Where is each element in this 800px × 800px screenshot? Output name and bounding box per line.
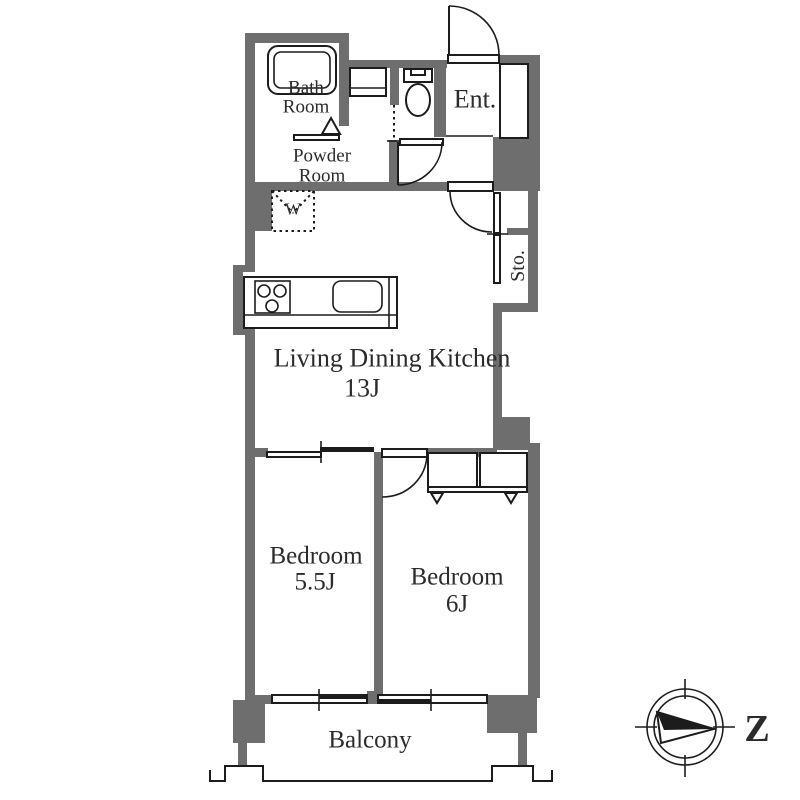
bedroom-1: Bedroom 5.5J bbox=[269, 543, 363, 596]
toilet-icon bbox=[406, 84, 430, 116]
wall-segment bbox=[233, 265, 255, 272]
wall-segment bbox=[493, 417, 530, 450]
wall-segment bbox=[374, 452, 383, 695]
toilet-tank-lid bbox=[411, 69, 425, 75]
balcony-outline bbox=[210, 766, 552, 781]
wall-segment bbox=[434, 60, 446, 137]
closet-door-mark bbox=[431, 493, 443, 503]
wall-segment bbox=[390, 60, 399, 105]
bedroom1-label-2: 5.5J bbox=[295, 569, 336, 596]
ldk-label-2: 13J bbox=[344, 374, 380, 403]
toilet-door-sill bbox=[400, 139, 443, 145]
compass: Z bbox=[635, 679, 770, 777]
toilet-door-arc bbox=[398, 142, 442, 185]
storage-door-panel bbox=[494, 193, 500, 233]
compass-needle-fill bbox=[657, 712, 714, 730]
ldk-door-sill bbox=[448, 182, 493, 191]
closet-box bbox=[480, 453, 527, 487]
bedroom2-door-sill bbox=[382, 449, 427, 457]
powder-room-label-2: Room bbox=[299, 166, 346, 187]
wall-segment bbox=[518, 733, 527, 767]
wall-segment bbox=[396, 182, 448, 191]
bedroom2-label-1: Bedroom bbox=[410, 564, 504, 591]
closet-rail bbox=[428, 487, 527, 492]
sliding-door-panel bbox=[267, 452, 321, 457]
wall-segment bbox=[233, 700, 265, 743]
entrance-door-arc bbox=[449, 6, 499, 55]
vanity-icon bbox=[350, 68, 386, 96]
shoe-cabinet bbox=[500, 64, 528, 138]
wall-segment bbox=[487, 695, 537, 733]
floor-plan-page: Bath Room Powder Room Ent. Sto bbox=[0, 0, 800, 800]
floor-plan: Bath Room Powder Room Ent. Sto bbox=[0, 0, 800, 800]
kitchen-counter bbox=[244, 277, 397, 328]
closet-box bbox=[428, 453, 477, 487]
sliding-door-panel bbox=[320, 447, 374, 452]
bath-room: Bath Room bbox=[268, 46, 340, 140]
ldk-door-arc bbox=[450, 191, 492, 232]
balcony-label: Balcony bbox=[328, 727, 412, 754]
sliding-door bbox=[267, 441, 374, 463]
washer-label: W bbox=[285, 200, 302, 219]
walls bbox=[233, 33, 540, 767]
ldk: Living Dining Kitchen 13J bbox=[274, 344, 511, 403]
wall-segment bbox=[238, 743, 247, 767]
wall-segment bbox=[245, 335, 255, 706]
wall-segment bbox=[233, 328, 255, 335]
storage-label: Sto. bbox=[507, 250, 529, 282]
wall-segment bbox=[493, 137, 540, 191]
storage: Sto. bbox=[487, 193, 529, 283]
hall-ldk-door bbox=[448, 182, 493, 232]
washer-area: W bbox=[272, 191, 314, 231]
entrance-door-sill bbox=[448, 55, 499, 63]
wall-segment bbox=[233, 265, 243, 335]
wall-segment bbox=[255, 191, 272, 231]
wall-segment bbox=[528, 55, 540, 137]
bedroom1-label-1: Bedroom bbox=[269, 543, 363, 570]
bedroom2-label-2: 6J bbox=[446, 591, 469, 618]
bath-room-label-2: Room bbox=[283, 97, 330, 118]
wall-segment bbox=[245, 33, 255, 265]
wall-segment bbox=[339, 33, 349, 126]
wall-segment bbox=[245, 33, 339, 43]
wall-segment bbox=[528, 191, 538, 312]
bath-door-sill bbox=[294, 135, 339, 140]
powder-room-label-1: Powder bbox=[293, 146, 352, 167]
wall-segment bbox=[367, 691, 378, 704]
entrance: Ent. bbox=[446, 6, 528, 138]
bath-room-label-1: Bath bbox=[288, 78, 324, 99]
closet-door-mark bbox=[505, 493, 517, 503]
wall-segment bbox=[507, 228, 538, 235]
bath-door-icon bbox=[322, 118, 340, 134]
bedroom-2: Bedroom 6J bbox=[382, 449, 527, 618]
storage-door-panel bbox=[494, 235, 500, 283]
north-label: Z bbox=[744, 708, 769, 750]
bedroom2-door-arc bbox=[382, 453, 427, 497]
ldk-label-1: Living Dining Kitchen bbox=[274, 344, 511, 373]
entrance-label: Ent. bbox=[454, 85, 497, 114]
wall-segment bbox=[528, 443, 540, 698]
sink-icon bbox=[333, 281, 382, 312]
